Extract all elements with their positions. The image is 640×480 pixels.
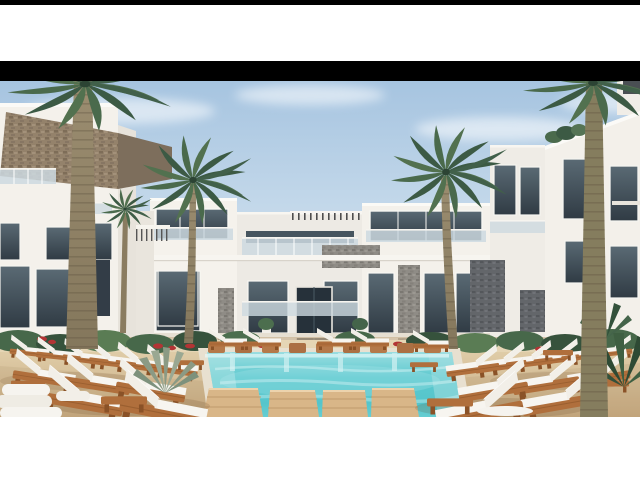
- towels: [477, 406, 533, 416]
- pool-platforms: [203, 388, 419, 417]
- window: [610, 166, 638, 221]
- window: [0, 266, 30, 328]
- window: [0, 223, 20, 260]
- glass-balcony: [242, 302, 358, 316]
- central-building: [150, 198, 490, 343]
- window: [368, 273, 394, 333]
- window: [520, 167, 540, 215]
- resort-photo: [0, 81, 640, 417]
- resort-photo-svg: [0, 81, 640, 417]
- window: [610, 246, 638, 298]
- stone-pillar: [470, 260, 505, 332]
- glass-balcony: [0, 168, 56, 184]
- stone-pillar: [398, 265, 420, 340]
- bottom-white-margin: [0, 417, 640, 480]
- glass-balcony: [490, 221, 545, 233]
- window: [563, 159, 587, 219]
- top-white-margin: [0, 5, 640, 61]
- letterbox-band: [0, 61, 640, 81]
- screenshot-canvas: [0, 0, 640, 480]
